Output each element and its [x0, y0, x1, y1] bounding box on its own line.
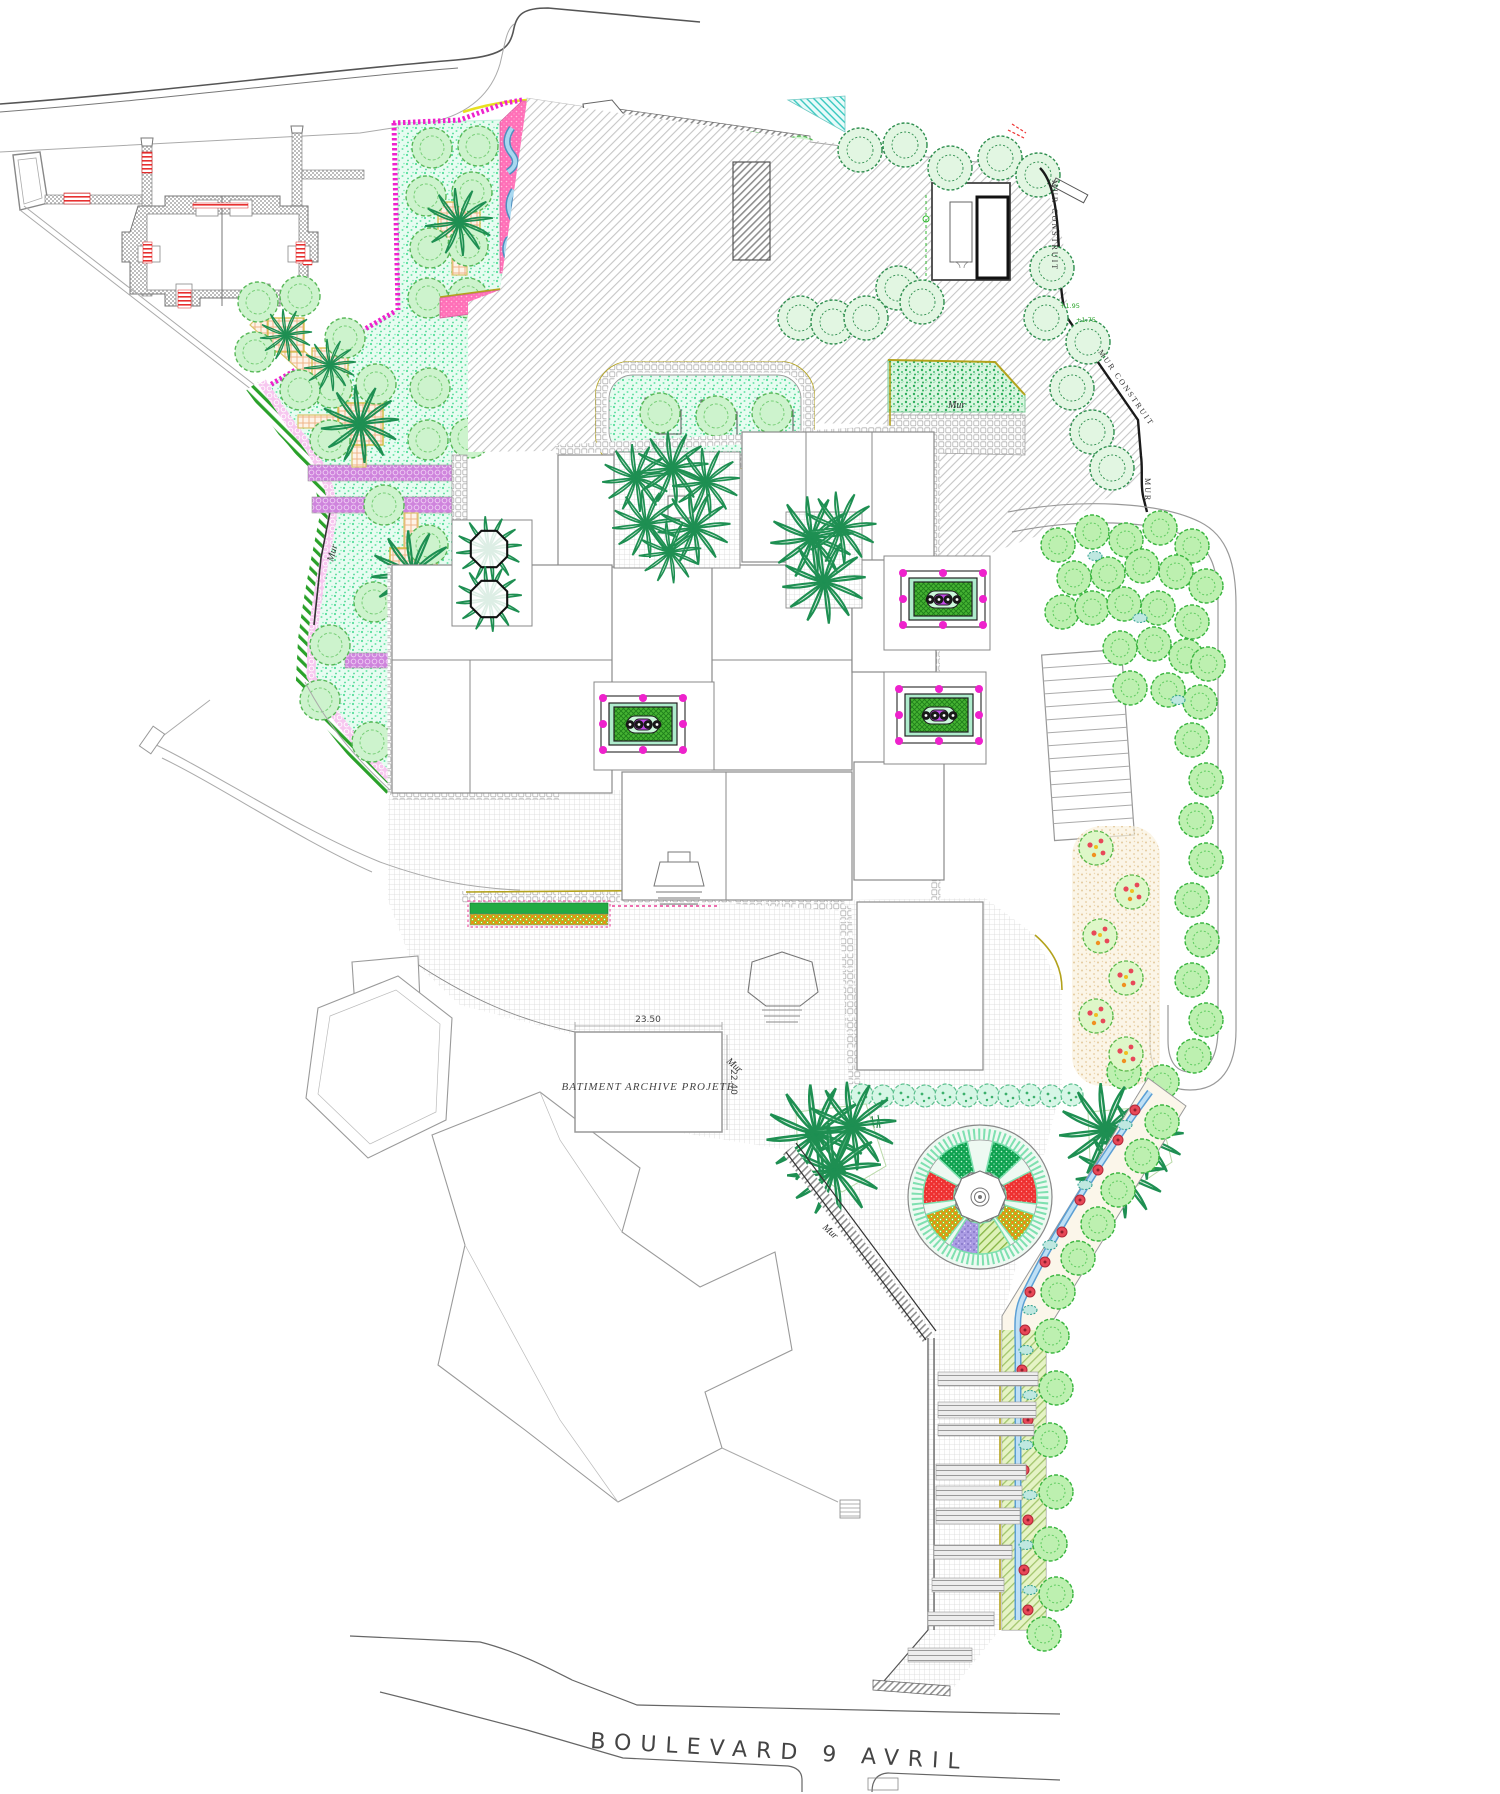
pergola-band: [308, 465, 452, 481]
mur-label-2: Mur: [947, 400, 965, 411]
existing-building-1: [306, 976, 452, 1158]
boulevard-label: BOULEVARD 9 AVRIL: [590, 1729, 970, 1775]
stair-detail: [840, 1500, 860, 1518]
fountain-2: [599, 694, 687, 754]
palm-court: [602, 432, 740, 584]
octagon-court: [452, 516, 532, 632]
fountain-3: [895, 685, 983, 745]
elevation-label-1: +1.95: [1060, 302, 1080, 310]
red-stair: [142, 152, 152, 173]
teal-patch: [788, 96, 845, 132]
mur-short-label: MUR: [1143, 478, 1152, 502]
circular-garden: [908, 1125, 1052, 1269]
site-plan-canvas: Mur Mur: [0, 0, 1500, 1794]
ne-white-building: [923, 183, 1010, 280]
fountain-court-2: [594, 682, 714, 770]
fountain-court-3: [884, 672, 986, 764]
hedge-row: [851, 1084, 1083, 1107]
archive-label: BATIMENT ARCHIVE PROJETE: [562, 1081, 735, 1093]
existing-building-2: [432, 1092, 792, 1502]
mur-construit-label-1: MUR CONSTRUIT: [1050, 180, 1059, 271]
site-plan: Mur Mur: [0, 0, 1500, 1794]
elevation-label-2: +1.75: [1076, 316, 1096, 324]
red-stair: [64, 193, 90, 204]
hatched-building: [733, 162, 770, 260]
red-dash-mark: [1008, 124, 1026, 138]
monument-complex: [13, 126, 364, 390]
fountain-court-1: [884, 556, 990, 650]
archive-building: 23.50 22.40 BATIMENT ARCHIVE PROJETE Mur: [562, 1015, 745, 1132]
dim-width-label: 23.50: [635, 1015, 661, 1025]
fountain-1: [899, 569, 987, 629]
